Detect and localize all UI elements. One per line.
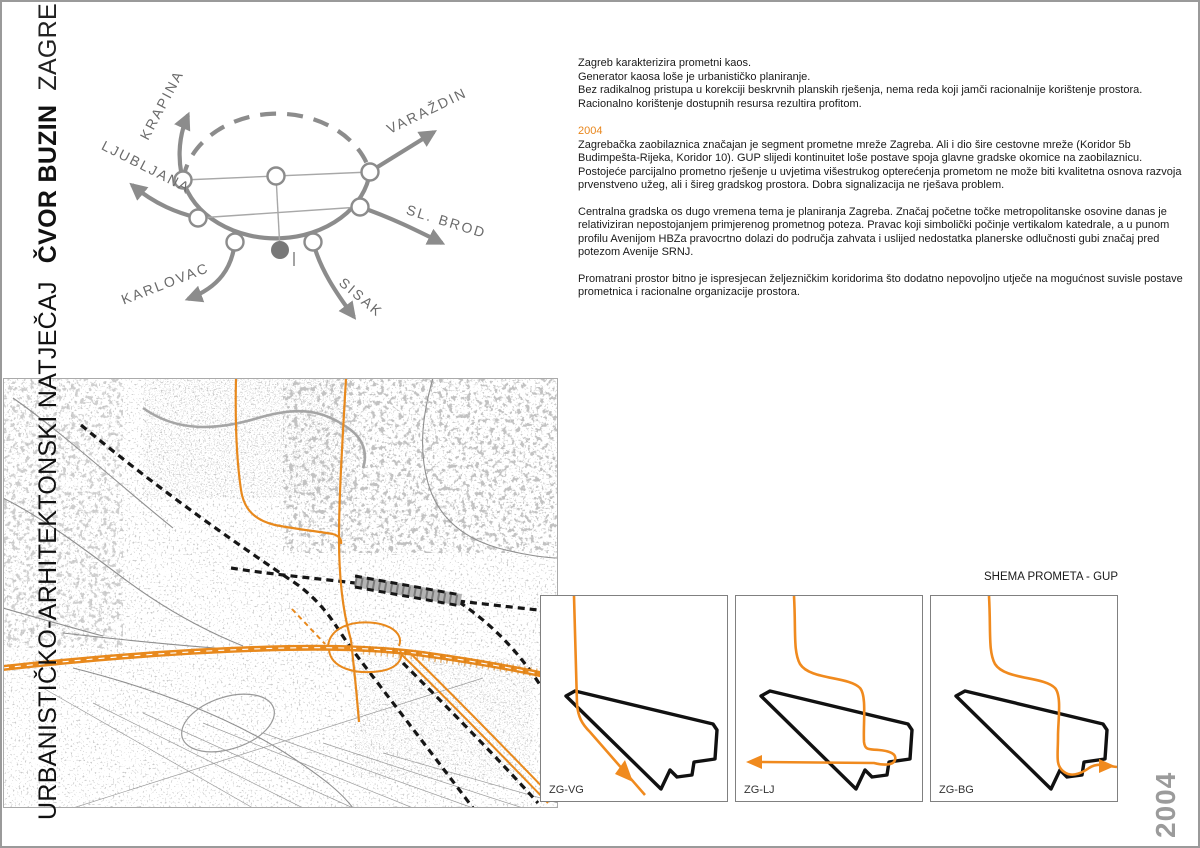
label-sl-brod: SL. BROD: [404, 201, 488, 241]
paragraph2-line: relativiziran nepostojanjem primjerenog …: [578, 219, 1178, 233]
scheme-label-zg-lj: ZG-LJ: [744, 784, 775, 796]
label-sisak: SISAK: [336, 274, 386, 320]
intro-line: Racionalno korištenje dostupnih resursa …: [578, 98, 1178, 112]
paragraph3-line: Promatrani prostor bitno je ispresjecan …: [578, 273, 1178, 287]
route-lj: [762, 596, 895, 765]
competition-board: URBANISTIČKO-ARHITEKTONSKI NATJEČAJČVOR …: [0, 0, 1200, 848]
schemes-heading: SHEMA PROMETA - GUP: [900, 571, 1118, 583]
scheme-zg-lj-drawing: [736, 596, 922, 801]
buzin-area-cadastral-map: [3, 378, 558, 808]
scheme-zg-bg-drawing: [931, 596, 1117, 801]
route-lj-arrowhead: [746, 755, 762, 769]
vertical-title-competition: URBANISTIČKO-ARHITEKTONSKI NATJEČAJ: [34, 281, 62, 820]
site-boundary-outline: [761, 691, 912, 789]
label-varazdin: VARAŽDIN: [384, 84, 470, 137]
scheme-label-zg-vg: ZG-VG: [549, 784, 584, 796]
year-heading: 2004: [578, 125, 1178, 139]
paragraph1-line: prvenstveno užeg, ali i šireg gradskog p…: [578, 179, 1178, 193]
intro-line: Zagreb karakterizira prometni kaos.: [578, 57, 1178, 71]
label-krapina: KRAPINA: [136, 67, 186, 142]
route-bg-arrowhead: [1099, 759, 1115, 773]
paragraph2-line: potezom Avenije SRNJ.: [578, 246, 1178, 260]
arrow-varazdin: [371, 132, 434, 171]
year-label: 2004: [1150, 772, 1182, 838]
paragraph2-line: Centralna gradska os dugo vremena tema j…: [578, 206, 1178, 220]
scheme-label-zg-bg: ZG-BG: [939, 784, 974, 796]
site-boundary-outline: [566, 691, 717, 789]
scheme-box-zg-vg: ZG-VG: [540, 595, 728, 802]
label-karlovac: KARLOVAC: [119, 259, 211, 307]
paragraph3-line: prometnica i racionalne organizacije pro…: [578, 286, 1178, 300]
paragraph1-line: Zagrebačka zaobilaznica značajan je segm…: [578, 139, 1178, 153]
intro-line: Bez radikalnog pristupa u korekciji besk…: [578, 84, 1178, 98]
description-text-block: Zagreb karakterizira prometni kaos. Gene…: [578, 57, 1178, 300]
paragraph2-line: profilu Avenijom HBZa pravocrtno dolazi …: [578, 233, 1178, 247]
ring-road-schematic-diagram: KRAPINA VARAŽDIN LJUBLJANA SL. BROD KARL…: [90, 45, 510, 350]
buzin-node-filled: [271, 241, 289, 259]
vertical-title-project: ČVOR BUZIN: [34, 105, 62, 264]
paragraph1-line: Postojeće parcijalno prometno rješenje u…: [578, 166, 1178, 180]
intro-line: Generator kaosa loše je urbanističko pla…: [578, 71, 1178, 85]
map-building-texture: [3, 378, 558, 808]
scheme-box-zg-lj: ZG-LJ: [735, 595, 923, 802]
site-boundary-outline: [956, 691, 1107, 789]
scheme-box-zg-bg: ZG-BG: [930, 595, 1118, 802]
scheme-zg-vg-drawing: [541, 596, 727, 801]
vertical-title-city: ZAGREB: [34, 0, 62, 91]
vertical-title: URBANISTIČKO-ARHITEKTONSKI NATJEČAJČVOR …: [34, 0, 63, 820]
paragraph1-line: Budimpešta-Rijeka, Koridor 10). GUP slij…: [578, 152, 1178, 166]
